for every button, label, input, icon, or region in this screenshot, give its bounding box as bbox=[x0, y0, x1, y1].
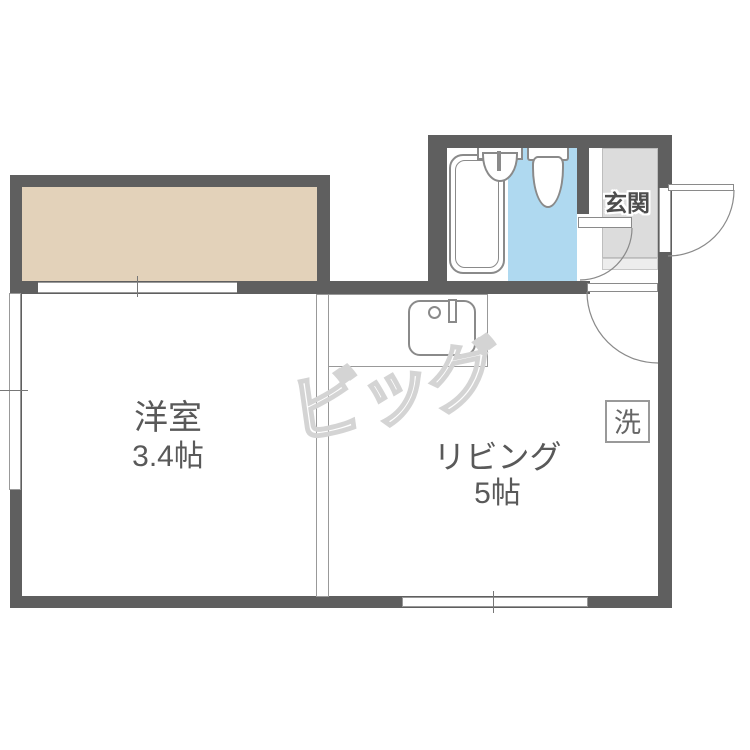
living-room-name: リビング bbox=[400, 438, 595, 476]
washroom-door-arc-icon bbox=[580, 228, 632, 280]
front-door-arc-icon bbox=[668, 190, 734, 256]
living-room-size: 5帖 bbox=[400, 476, 595, 512]
entrance-label: 玄関 bbox=[604, 184, 650, 218]
room-label-western: 洋室 3.4帖 bbox=[68, 398, 268, 475]
washing-machine-box: 洗 bbox=[605, 400, 650, 443]
living-door-arc-icon bbox=[587, 292, 658, 363]
western-room-name: 洋室 bbox=[68, 398, 268, 439]
western-room-size: 3.4帖 bbox=[68, 439, 268, 475]
floorplan-canvas: ビッグ 洋室 3.4帖 リビング 5帖 玄関 洗 bbox=[0, 0, 750, 750]
room-label-living: リビング 5帖 bbox=[400, 438, 595, 512]
